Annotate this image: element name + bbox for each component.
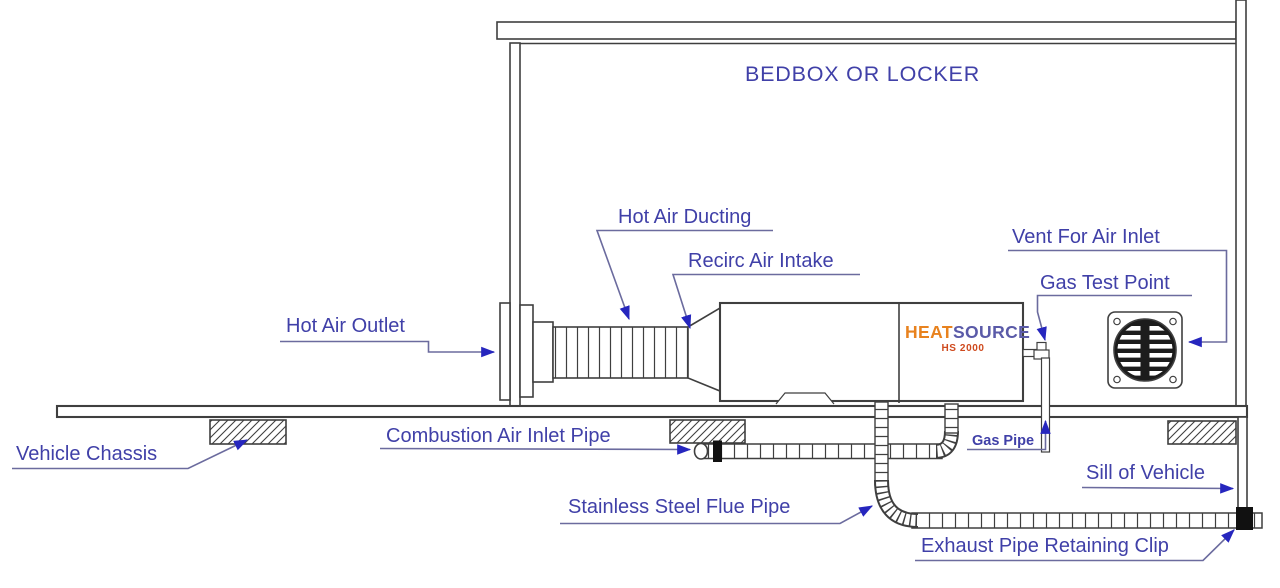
vehicle-floor (57, 406, 1247, 417)
callout-text: Recirc Air Intake (688, 250, 834, 272)
bedbox-right-wall (1236, 0, 1246, 407)
duct-collar (533, 322, 553, 382)
combustion-pipe-end-cap (695, 443, 708, 459)
callout-text: Vehicle Chassis (16, 443, 157, 465)
heater-installation-diagram: HEATSOURCE HS 2000 BEDBOX OR LOCKER Hot … (0, 0, 1280, 588)
callout-text: Hot Air Outlet (286, 315, 405, 337)
exhaust-pipe (912, 513, 1262, 528)
callout-gas-pipe: Gas Pipe (967, 421, 1046, 450)
hot-air-outlet-plate-inner (520, 305, 533, 397)
recirc-air-intake-cone (688, 308, 720, 391)
callout-sill-of-vehicle: Sill of Vehicle (1082, 462, 1233, 489)
vent-screw-icon (1170, 376, 1176, 382)
callout-text: Vent For Air Inlet (1012, 226, 1160, 248)
callout-labels: BEDBOX OR LOCKER Hot Air Ducting Recirc … (12, 62, 1234, 561)
bedbox-top-board (497, 22, 1236, 39)
leader-line (280, 342, 494, 353)
vent-screw-icon (1170, 318, 1176, 324)
chassis-rail-left (210, 420, 286, 444)
combustion-pipe-riser (945, 404, 958, 433)
diagram-title: BEDBOX OR LOCKER (745, 62, 980, 86)
callout-text: Combustion Air Inlet Pipe (386, 425, 611, 447)
vent-screw-icon (1114, 376, 1120, 382)
callout-text: Hot Air Ducting (618, 206, 751, 228)
callout-stainless-steel-flue-pipe: Stainless Steel Flue Pipe (560, 496, 872, 524)
callout-exhaust-pipe-retaining-clip: Exhaust Pipe Retaining Clip (915, 530, 1234, 561)
callout-text: Exhaust Pipe Retaining Clip (921, 535, 1169, 557)
callout-hot-air-outlet: Hot Air Outlet (280, 315, 494, 352)
vehicle-sill (1238, 417, 1247, 512)
heater-model-label: HS 2000 (941, 343, 984, 354)
callout-combustion-air-inlet-pipe: Combustion Air Inlet Pipe (380, 425, 690, 450)
leader-line (380, 449, 690, 450)
air-inlet-vent (1108, 312, 1182, 388)
callout-text: Sill of Vehicle (1086, 462, 1205, 484)
chassis-rail-middle (670, 420, 745, 443)
gas-test-point-fitting (1037, 343, 1046, 351)
combustion-air-inlet-pipe (700, 444, 942, 459)
callout-text: Gas Test Point (1040, 272, 1170, 294)
heater-brand-logo: HEATSOURCE (905, 322, 1030, 342)
hot-air-outlet-plate-outer (500, 303, 510, 400)
leader-line (1082, 488, 1233, 489)
hot-air-duct (553, 327, 688, 378)
diagram-canvas: HEATSOURCE HS 2000 BEDBOX OR LOCKER Hot … (0, 0, 1280, 588)
heater-mounting-foot (776, 393, 834, 404)
flue-pipe-vertical (875, 402, 888, 485)
vent-screw-icon (1114, 318, 1120, 324)
bedbox-left-wall (510, 43, 520, 407)
chassis-rail-right (1168, 421, 1236, 444)
combustion-pipe-clamp (713, 441, 722, 463)
callout-text: Stainless Steel Flue Pipe (568, 496, 790, 518)
callout-text: Gas Pipe (972, 433, 1034, 449)
exhaust-retaining-clip (1236, 507, 1253, 530)
